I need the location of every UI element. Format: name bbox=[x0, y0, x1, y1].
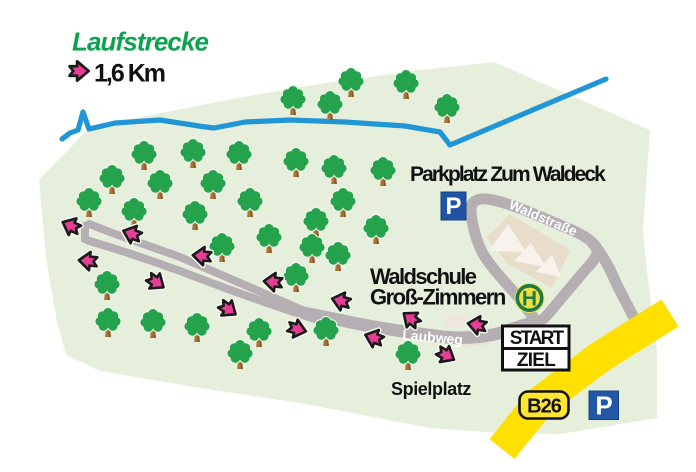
svg-text:P: P bbox=[445, 193, 461, 220]
svg-text:1,6 Km: 1,6 Km bbox=[94, 60, 165, 88]
svg-text:Groß-Zimmern: Groß-Zimmern bbox=[370, 285, 506, 310]
svg-text:Parkplatz Zum Waldeck: Parkplatz Zum Waldeck bbox=[410, 163, 606, 186]
svg-text:Laufstrecke: Laufstrecke bbox=[72, 27, 208, 57]
svg-text:B26: B26 bbox=[527, 396, 562, 418]
svg-text:START: START bbox=[510, 328, 565, 349]
svg-text:P: P bbox=[595, 391, 612, 421]
svg-text:H: H bbox=[522, 288, 537, 311]
svg-text:Spielplatz: Spielplatz bbox=[391, 379, 471, 399]
svg-text:ZIEL: ZIEL bbox=[517, 350, 556, 371]
